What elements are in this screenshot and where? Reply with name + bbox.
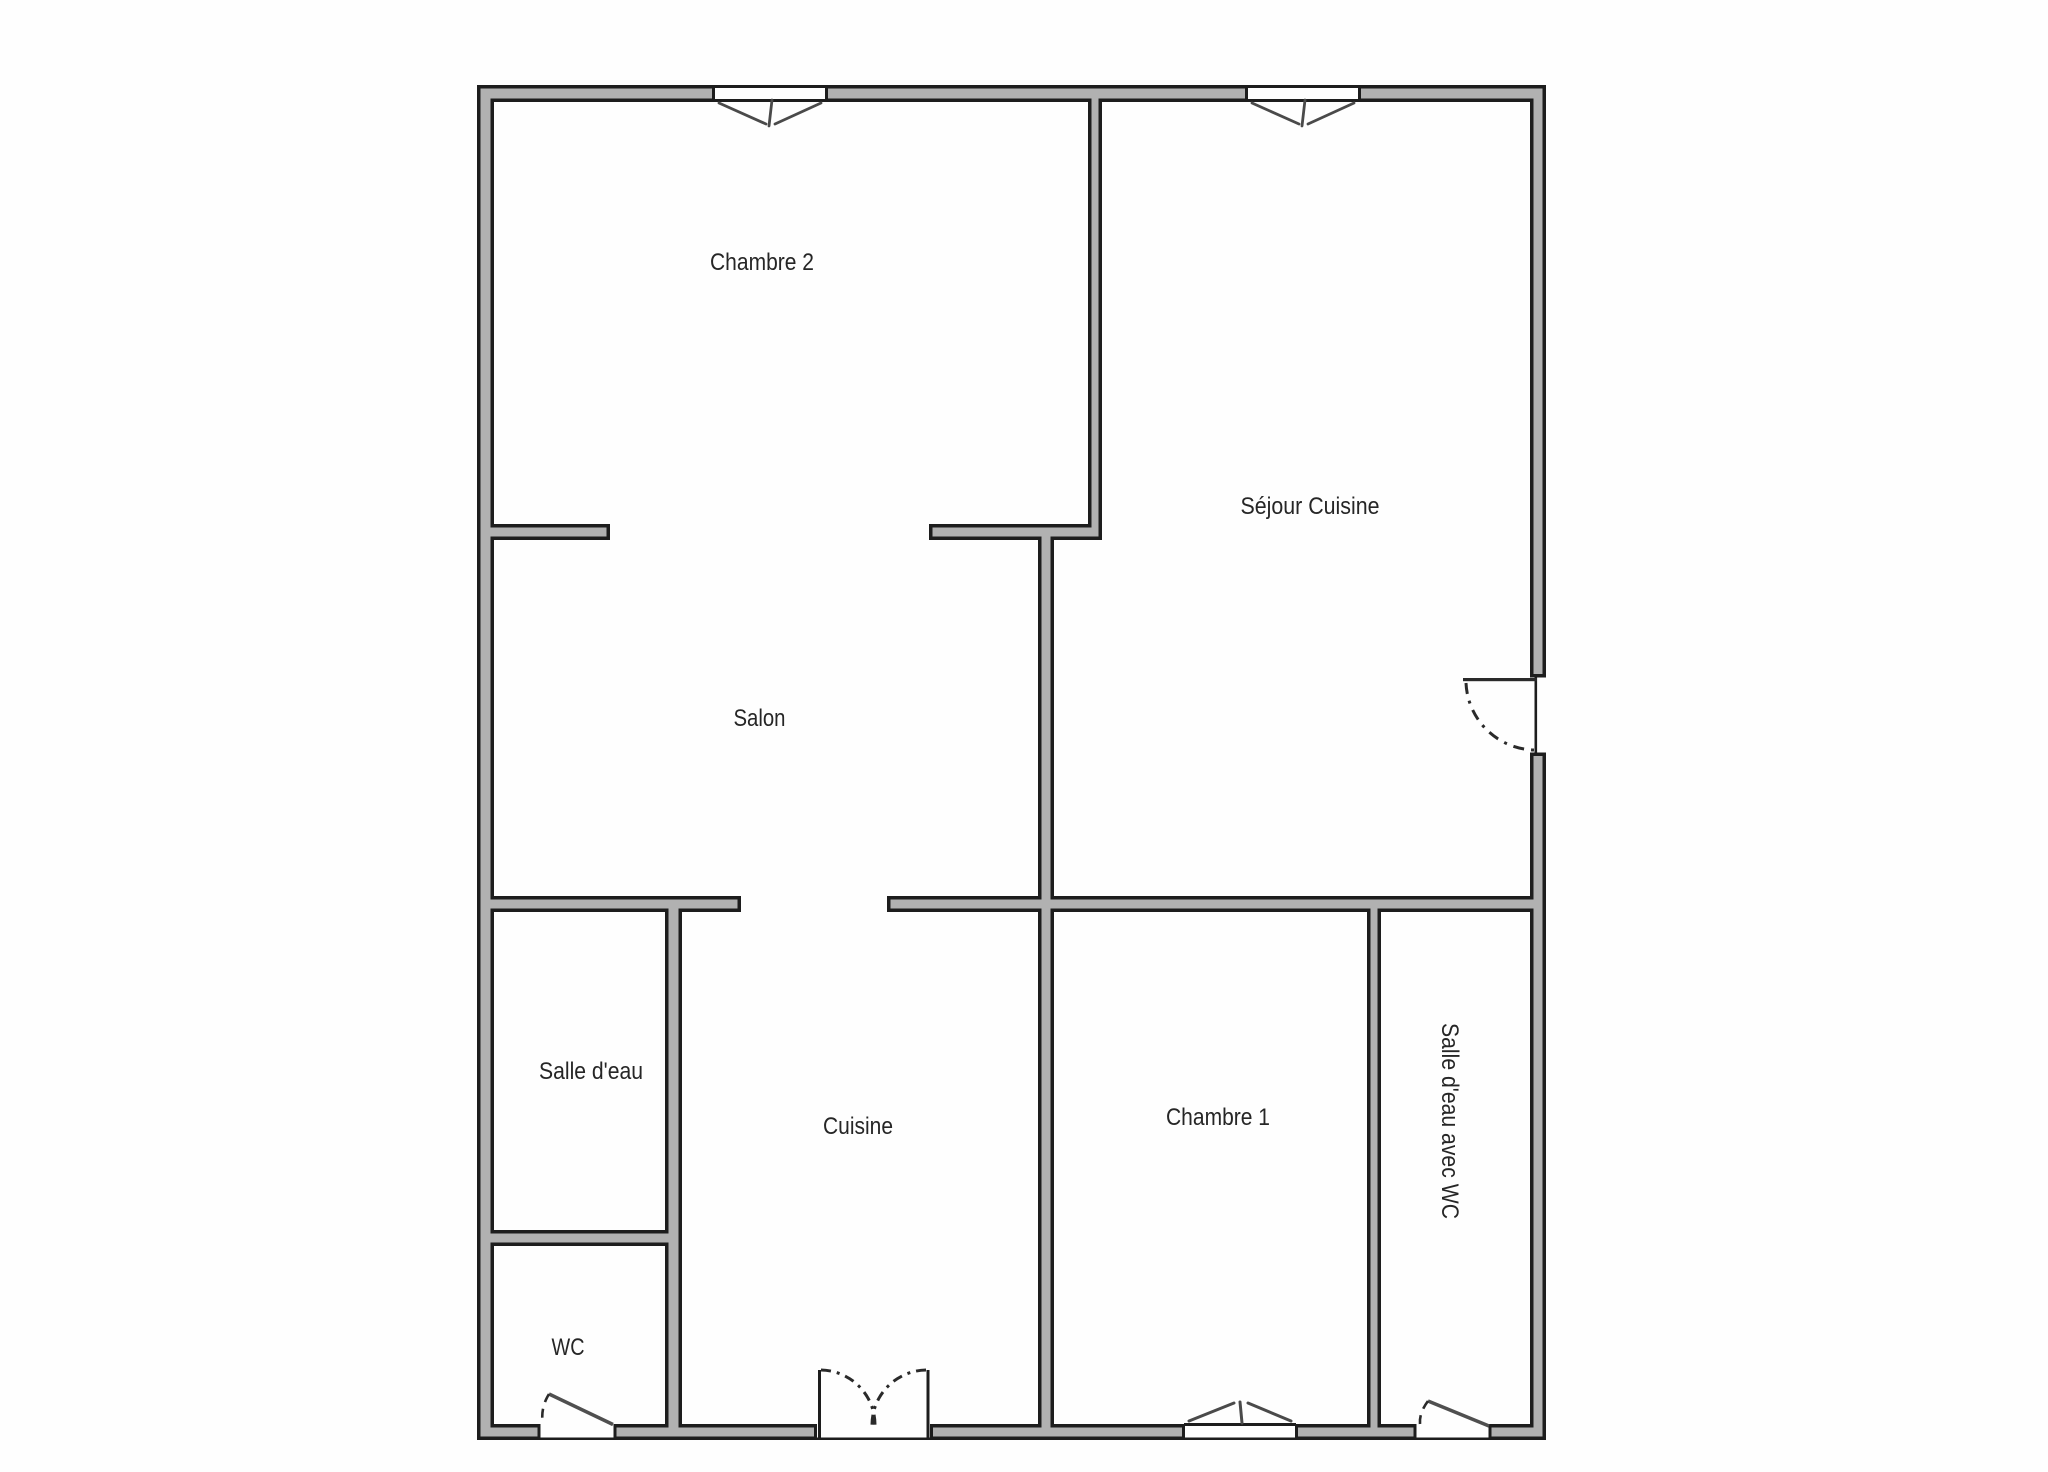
- svg-text:Salle d'eau: Salle d'eau: [539, 1058, 643, 1085]
- svg-text:Séjour Cuisine: Séjour Cuisine: [1241, 493, 1380, 520]
- svg-text:Salon: Salon: [734, 705, 786, 732]
- svg-text:Cuisine: Cuisine: [823, 1113, 893, 1140]
- svg-text:Chambre 2: Chambre 2: [710, 249, 814, 276]
- svg-text:Salle d'eau avec WC: Salle d'eau avec WC: [1436, 1023, 1463, 1219]
- svg-text:Chambre 1: Chambre 1: [1166, 1104, 1270, 1131]
- svg-text:WC: WC: [552, 1334, 585, 1361]
